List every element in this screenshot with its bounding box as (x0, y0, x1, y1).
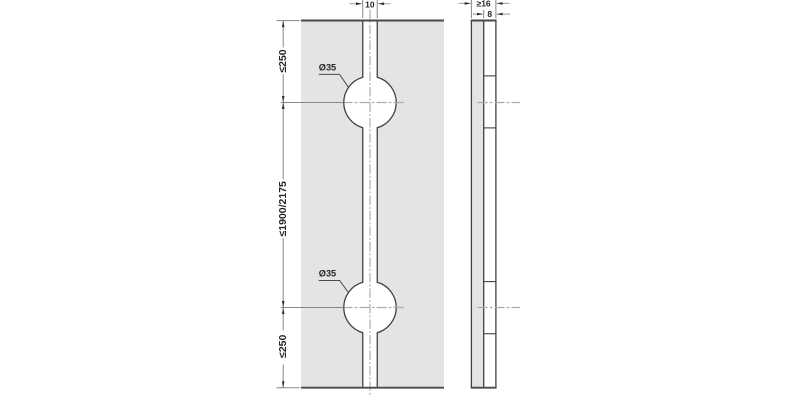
svg-text:≤1900/2175: ≤1900/2175 (277, 181, 289, 237)
svg-text:Ø35: Ø35 (319, 269, 336, 279)
svg-text:10: 10 (365, 0, 375, 9)
svg-text:≤250: ≤250 (277, 335, 289, 358)
svg-text:≤250: ≤250 (277, 49, 289, 72)
svg-text:≥16: ≥16 (477, 0, 491, 9)
svg-text:8: 8 (487, 9, 492, 19)
svg-text:Ø35: Ø35 (319, 63, 336, 73)
